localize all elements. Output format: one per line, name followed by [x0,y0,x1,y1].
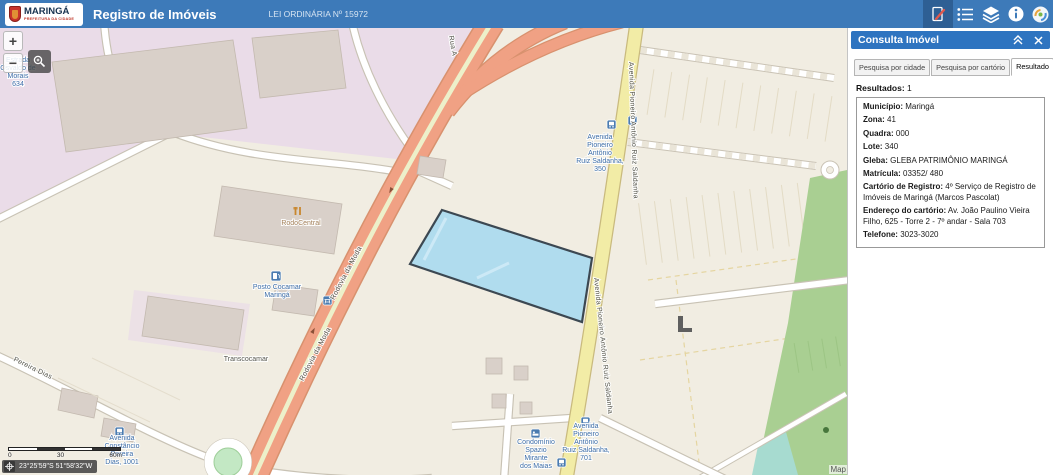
address-label: Dias, 1001 [105,459,139,466]
consulta-imovel-panel: Consulta Imóvel Pesquisa por cidade Pesq… [847,28,1053,475]
mouse-coordinates: 23°25'59"S 51°58'32"W [2,460,97,473]
field-zona: Zona: 41 [863,115,1038,125]
address-label: Avenida [587,134,612,141]
map-attribution: Map [829,465,847,474]
user-avatar[interactable] [1028,0,1053,28]
field-telefone: Telefone: 3023-3020 [863,230,1038,240]
map-canvas[interactable]: Estrada Osvaldo de Morais 634 RodoCentra… [0,28,847,475]
results-count: 1 [907,83,912,93]
poi-label: Mirante [524,455,547,462]
tab-pesquisa-por-cidade[interactable]: Pesquisa por cidade [854,59,930,76]
city-logo: MARINGÁ PREFEITURA DA CIDADE [5,3,83,26]
box-zoom-button[interactable] [28,50,51,73]
tab-resultado[interactable]: Resultado [1011,58,1053,76]
panel-tabs: Pesquisa por cidade Pesquisa por cartóri… [854,58,1050,76]
property-query-icon[interactable] [923,0,953,28]
crosshair-icon [4,461,15,472]
tab-pesquisa-por-cartorio[interactable]: Pesquisa por cartório [931,59,1010,76]
map-container: Estrada Osvaldo de Morais 634 RodoCentra… [0,28,847,475]
address-label: Antônio [588,150,612,157]
address-label: Antônio [574,439,598,446]
app-window: MARINGÁ PREFEITURA DA CIDADE Registro de… [0,0,1053,475]
scale-bar: 0 30 60m [8,447,122,459]
zoom-controls: + − [3,31,23,73]
bus-stop-icon [607,120,616,129]
field-quadra: Quadra: 000 [863,129,1038,139]
poi-label: dos Maias [520,463,552,470]
app-header: MARINGÁ PREFEITURA DA CIDADE Registro de… [0,0,1053,28]
poi-label: Maringá [264,292,289,299]
header-toolbar [923,0,1053,28]
field-cartorio: Cartório de Registro: 4º Serviço de Regi… [863,182,1038,203]
street-label: Morais [7,73,29,80]
poi-label: Spazio [525,447,547,454]
results-count-line: Resultados: 1 [856,83,1045,93]
address-label: Ruiz Saldanha, [562,447,610,454]
bus-stop-icon [557,458,566,467]
address-label: 350 [594,166,606,173]
address-label: Avenida [573,423,598,430]
address-label: Ruiz Saldanha, [576,158,624,165]
fuel-icon [271,271,281,281]
field-lote: Lote: 340 [863,142,1038,152]
magnifier-plus-icon [33,55,46,68]
result-card[interactable]: Município: Maringá Zona: 41 Quadra: 000 … [856,97,1045,248]
poi-label: Condomínio [517,439,555,446]
poi-label: Transcocamar [224,356,269,363]
list-icon[interactable] [953,0,978,28]
field-endereco: Endereço do cartório: Av. João Paulino V… [863,206,1038,227]
law-reference: LEI ORDINÁRIA Nº 15972 [269,9,368,19]
address-label: 701 [580,455,592,462]
logo-subtitle: PREFEITURA DA CIDADE [24,17,74,21]
layers-icon[interactable] [978,0,1003,28]
field-gleba: Gleba: GLEBA PATRIMÔNIO MARINGÁ [863,156,1038,166]
zoom-in-button[interactable]: + [3,31,23,51]
collapse-icon[interactable] [1013,35,1023,45]
address-label: Avenida [109,435,134,442]
scale-tick: 0 [8,452,12,459]
street-label: 634 [12,81,24,88]
lodging-icon [531,429,540,438]
panel-title: Consulta Imóvel [858,34,1013,46]
field-municipio: Município: Maringá [863,102,1038,112]
panel-header: Consulta Imóvel [851,31,1050,49]
results-label: Resultados: [856,83,905,93]
info-icon[interactable] [1003,0,1028,28]
page-title: Registro de Imóveis [93,7,217,22]
field-matricula: Matrícula: 03352/ 480 [863,169,1038,179]
logo-title: MARINGÁ [24,7,74,17]
zoom-out-button[interactable]: − [3,53,23,73]
tree-icon [823,427,829,433]
city-shield-icon [9,6,21,22]
address-label: Pioneiro [573,431,599,438]
scale-tick: 60m [109,452,122,459]
close-icon[interactable] [1034,36,1043,45]
scale-tick: 30 [57,452,64,459]
poi-label: Posto Cocamar [253,284,302,291]
address-label: Pioneiro [587,142,613,149]
coordinates-value: 23°25'59"S 51°58'32"W [19,463,92,470]
poi-label: RodoCentral [281,220,321,227]
